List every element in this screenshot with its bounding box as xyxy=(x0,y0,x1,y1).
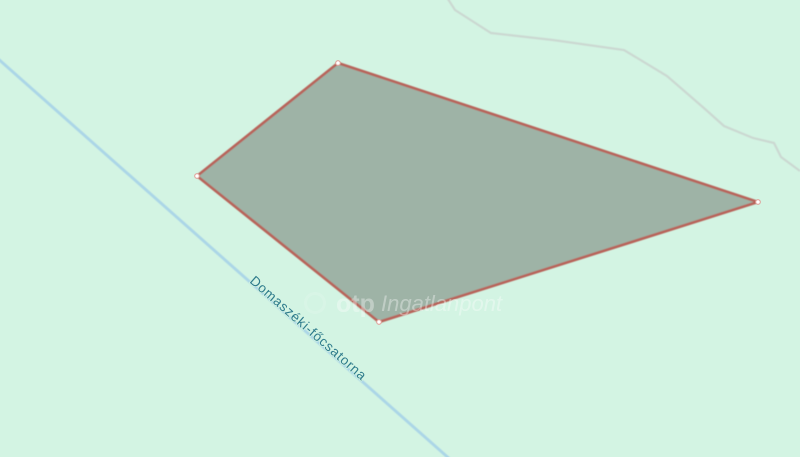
svg-text:otp: otp xyxy=(336,290,375,318)
svg-text:Ingatlanpont: Ingatlanpont xyxy=(381,291,503,316)
